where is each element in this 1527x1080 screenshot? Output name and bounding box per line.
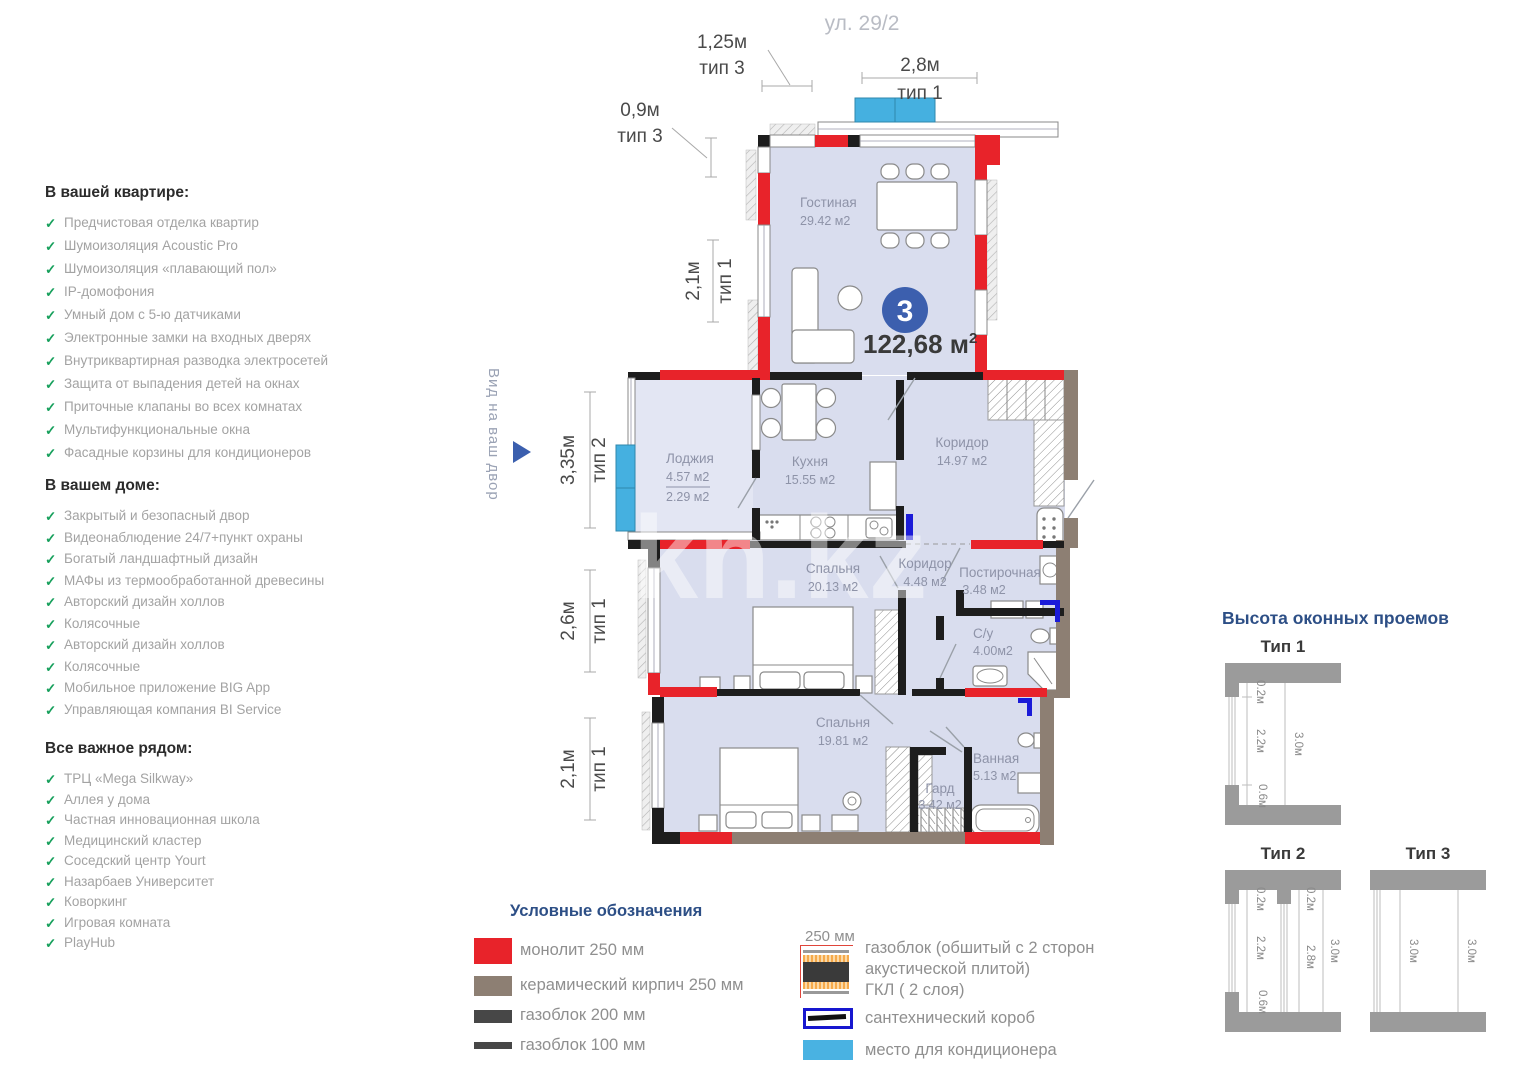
room-bedroom1-name: Спальня (806, 561, 860, 576)
room-bath-area: 5.13 м2 (973, 769, 1016, 783)
svg-text:0.2м: 0.2м (1254, 680, 1266, 704)
room-hall2-name: Коридор (898, 556, 951, 571)
view-arrow-icon (513, 441, 531, 463)
watermark: kn.kz (632, 492, 927, 624)
room-kitchen-area: 15.55 м2 (785, 473, 835, 487)
svg-text:2.8м: 2.8м (1304, 945, 1316, 969)
dim-loggia-type: тип 2 (589, 437, 610, 482)
room-loggia-area2: 2.29 м2 (666, 490, 709, 504)
room-bedroom1-area: 20.13 м2 (808, 580, 858, 594)
ac-label: место для кондиционера (865, 1041, 1057, 1060)
gasblock-composite-swatch (803, 950, 849, 994)
gasblock-note-size: 250 мм (805, 928, 855, 945)
win-type3-diagram: 3.0м 3.0м (1370, 870, 1486, 1032)
dim-bedroom2-type: тип 1 (589, 746, 610, 791)
svg-text:0.6м: 0.6м (1256, 784, 1268, 808)
svg-text:0.6м: 0.6м (1256, 990, 1268, 1014)
dim-bedroom1-value: 2,6м (558, 601, 579, 640)
svg-text:0.2м: 0.2м (1304, 887, 1316, 911)
win-type1-diagram: 0.2м 2.2м 0.6м 3.0м (1225, 663, 1341, 825)
badge-area: 122,68 м2 (863, 329, 977, 359)
win-type1-label: Тип 1 (1261, 637, 1306, 656)
room-bedroom2-name: Спальня (816, 715, 870, 730)
brick-label: керамический кирпич 250 мм (520, 976, 744, 995)
dim-bedroom1-type: тип 1 (589, 598, 610, 643)
room-loggia-name: Лоджия (666, 451, 714, 466)
gasblock-note-label: газоблок (обшитый с 2 сторон акустическо… (865, 938, 1094, 1001)
room-hall-name: Коридор (935, 435, 988, 450)
svg-text:2.2м: 2.2м (1254, 936, 1266, 960)
dim-small-type: тип 3 (617, 126, 662, 147)
room-living-area: 29.42 м2 (800, 214, 850, 228)
dim-living-type: тип 1 (715, 258, 736, 303)
dim-living-value: 2,1м (683, 261, 704, 300)
gasblock200-label: газоблок 200 мм (520, 1006, 646, 1025)
monolith-label: монолит 250 мм (520, 941, 644, 960)
room-laundry-area: 3.48 м2 (962, 583, 1005, 597)
dim-loggia-value: 3,35м (558, 435, 579, 485)
gasblock200-swatch (474, 1010, 512, 1023)
room-loggia-area1: 4.57 м2 (666, 470, 709, 484)
room-kitchen-name: Кухня (792, 454, 828, 469)
svg-text:3.0м: 3.0м (1407, 939, 1419, 963)
legend: Условные обозначения монолит 250 мм кера… (472, 898, 1162, 1078)
dim-bedroom2-value: 2,1м (558, 749, 579, 788)
brick-swatch (474, 976, 512, 996)
room-wardrobe-name: Гард (925, 781, 954, 796)
ac-swatch (803, 1040, 853, 1060)
gasblock100-swatch (474, 1042, 512, 1049)
sanitary-wedge (808, 1014, 846, 1021)
yard-view-label: Вид на ваш двор (485, 368, 502, 501)
sanitary-swatch (803, 1008, 853, 1029)
dim-ac-type: тип 1 (897, 83, 942, 104)
room-laundry-name: Постирочная (959, 565, 1041, 580)
dim-lodge-type: тип 3 (699, 58, 744, 79)
room-wc-name: С/у (973, 626, 994, 641)
room-wardrobe-area: 3.42 м2 (918, 798, 961, 812)
room-bedroom2-area: 19.81 м2 (818, 734, 868, 748)
svg-text:3.0м: 3.0м (1292, 732, 1304, 756)
dim-small-value: 0,9м (620, 100, 659, 121)
room-wc-area: 4.00м2 (973, 644, 1013, 658)
dim-ac-value: 2,8м (900, 55, 939, 76)
monolith-swatch (474, 938, 512, 964)
win-type3-label: Тип 3 (1406, 844, 1451, 863)
svg-text:3.0м: 3.0м (1465, 939, 1477, 963)
sanitary-label: сантехнический короб (865, 1009, 1035, 1028)
svg-text:3.0м: 3.0м (1328, 939, 1340, 963)
dim-lodge-value: 1,25м (697, 32, 747, 53)
win-type2-diagram: 0.2м 2.2м 0.6м 0.2м 2.8м 3.0м (1225, 870, 1341, 1032)
win-type2-label: Тип 2 (1261, 844, 1306, 863)
room-bath-name: Ванная (973, 751, 1019, 766)
svg-text:0.2м: 0.2м (1254, 887, 1266, 911)
window-heights-heading: Высота оконных проемов (1222, 608, 1449, 628)
street-label: ул. 29/2 (825, 12, 900, 35)
room-hall-area: 14.97 м2 (937, 454, 987, 468)
gasblock100-label: газоблок 100 мм (520, 1036, 646, 1055)
room-living-name: Гостиная (800, 195, 857, 210)
badge-number: 3 (897, 295, 914, 328)
window-heights: Высота оконных проемов Тип 1 0.2м 2.2м 0… (1222, 608, 1486, 1032)
svg-text:2.2м: 2.2м (1254, 729, 1266, 753)
room-hall2-area: 4.48 м2 (903, 575, 946, 589)
legend-heading: Условные обозначения (510, 902, 702, 921)
